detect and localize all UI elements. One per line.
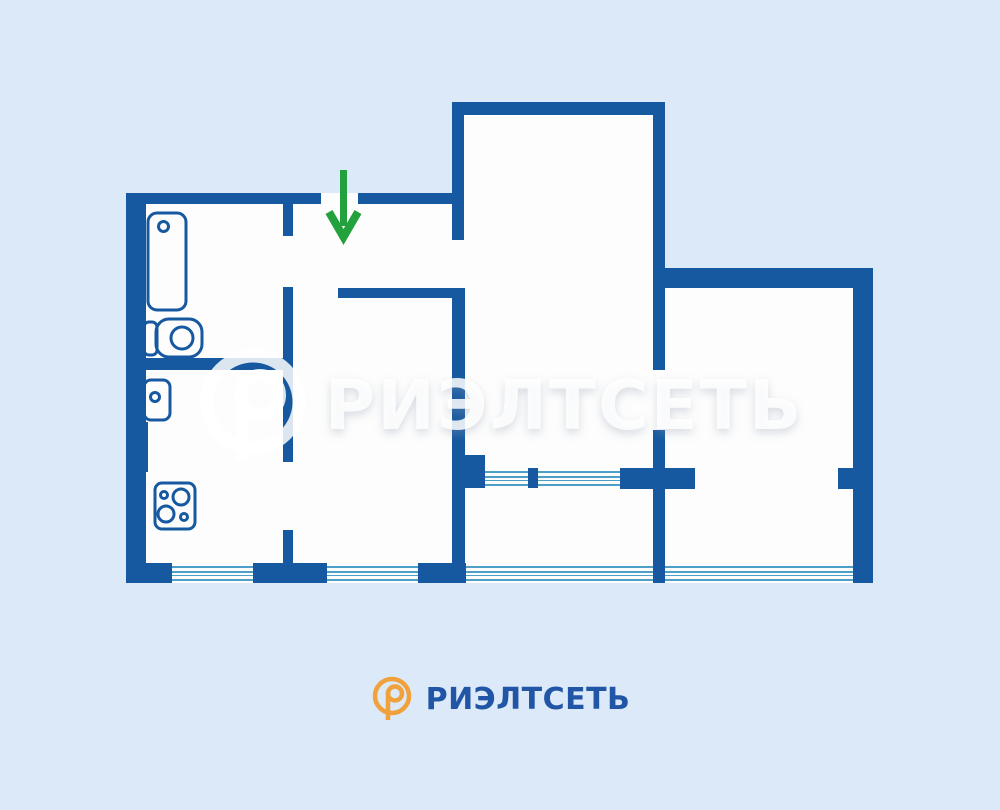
wall-balcony-junction [452, 455, 485, 488]
floorplan-page: РИЭЛТСЕТЬ РИЭЛТСЕТЬ [0, 0, 1000, 810]
tall-room-floor [452, 102, 665, 583]
wall-bottom-corner-left [126, 563, 172, 583]
footer-logo: РИЭЛТСЕТЬ [0, 674, 1000, 724]
balcony-block-window-left-line [485, 476, 528, 478]
room-window-line [327, 575, 418, 577]
wall-entrance-stub [283, 204, 293, 236]
wall-bathroom-bottom [126, 358, 283, 370]
wall-tall-room-right-lower [653, 430, 665, 583]
balcony-block-window-right-line [538, 471, 620, 473]
kitchen-window-line [172, 579, 253, 581]
balcony-block-window-right [538, 468, 620, 488]
wall-top-right-of-entrance [358, 193, 464, 204]
room-window [327, 563, 418, 583]
kitchen-window-line [172, 566, 253, 568]
loggia-glazing-right-line [665, 566, 853, 568]
wall-kitchen-step [136, 422, 148, 472]
balcony-block-window-left-line [485, 484, 528, 486]
wall-hallway-bottom [338, 288, 465, 298]
wall-tall-room-top [452, 102, 665, 115]
wall-right-block-top [653, 268, 873, 288]
balcony-block-window-right-line [538, 480, 620, 482]
room-window-line [327, 579, 418, 581]
kitchen-window [172, 563, 253, 583]
loggia-glazing-center-line [466, 579, 653, 581]
balcony-block-window-right-line [538, 484, 620, 486]
footer-brand-text: РИЭЛТСЕТЬ [426, 682, 631, 717]
wall-bottom-t-block [253, 563, 327, 583]
wall-right-room-stub [838, 468, 853, 489]
wall-exterior-left [126, 193, 146, 583]
wall-tall-room-right-upper [653, 110, 665, 370]
wall-exterior-right [853, 268, 873, 583]
loggia-glazing-center-line [466, 571, 653, 573]
balcony-block-window-left [485, 468, 528, 488]
loggia-glazing-center-line [466, 575, 653, 577]
loggia-glazing-center-line [466, 566, 653, 568]
wall-kitchen-right-lower [283, 530, 293, 565]
room-window-line [327, 566, 418, 568]
loggia-glazing-right-line [665, 571, 853, 573]
wall-balcony-solid [620, 468, 695, 489]
balcony-block-window-left-line [485, 480, 528, 482]
loggia-glazing-right-line [665, 579, 853, 581]
loggia-glazing-center [466, 563, 653, 583]
wall-tall-room-left [452, 110, 464, 240]
kitchen-window-line [172, 571, 253, 573]
wall-bottom-l-block [418, 563, 466, 583]
wall-top-left [126, 193, 321, 204]
loggia-glazing-right-line [665, 575, 853, 577]
wall-hallway-left [283, 287, 293, 462]
wall-balcony-mullion [528, 468, 538, 488]
realtnet-logo-icon [370, 674, 414, 724]
kitchen-window-line [172, 575, 253, 577]
right-block-floor [653, 268, 873, 583]
balcony-block-window-left-line [485, 471, 528, 473]
balcony-block-window-right-line [538, 476, 620, 478]
wall-central [452, 288, 465, 565]
loggia-glazing-right [665, 563, 853, 583]
left-block-floor [126, 193, 466, 583]
room-window-line [327, 571, 418, 573]
